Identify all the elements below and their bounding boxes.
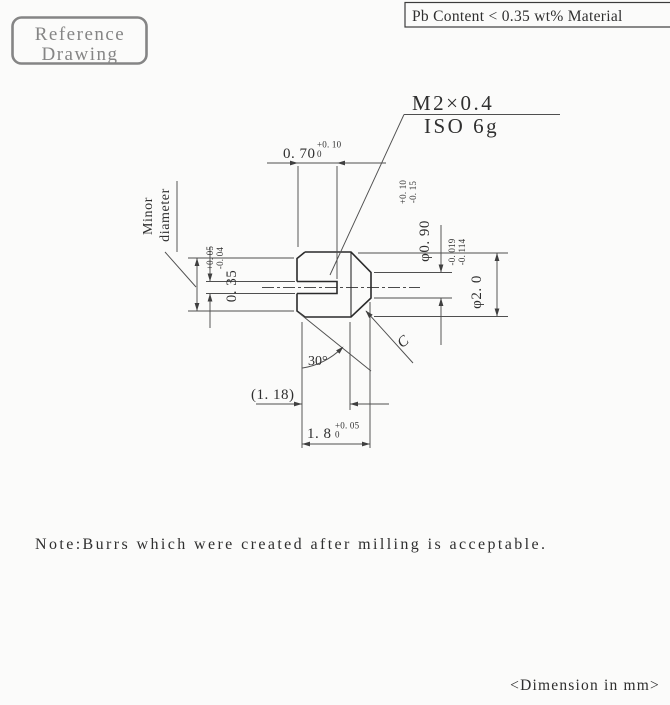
burr-note: Note:Burrs which were created after mill… [35,536,547,553]
arrowhead [195,258,200,266]
dim-tol-lower: 0 [317,149,322,159]
arrowhead [337,161,345,166]
screw-body [297,252,371,317]
arrowhead [195,303,200,311]
arrowhead [362,442,370,447]
dim-tol-lower: 0 [335,430,340,440]
dim-value: φ0. 90 [417,220,433,262]
arrowhead [495,309,500,317]
arrowhead [495,253,500,261]
angle-value: 30° [308,354,328,369]
dim-tol-upper: -0. 019 [447,238,457,265]
dim-tol-upper: +0. 10 [317,140,342,150]
arrowhead [439,265,444,273]
dim-tol-lower: -0. 114 [457,238,467,265]
arrowhead [208,294,213,302]
dim-tol-upper: +0. 05 [205,246,215,271]
units-note: <Dimension in mm> [510,677,660,694]
arrowhead [350,402,358,407]
banner-text: Pb Content < 0.35 wt% Material [412,8,623,25]
chamfer-letter: C [395,332,414,351]
minor-label-line1: Minor [141,197,156,235]
arrowhead [208,274,213,282]
arrowhead [302,442,310,447]
dim-tol-lower: -0. 15 [408,181,418,203]
drawing-canvas: Reference Drawing Pb Content < 0.35 wt% … [0,0,670,700]
dim-nose-diameter: φ0. 90 +0. 10 -0. 15 [374,180,452,345]
dim-tol-upper: +0. 10 [398,180,408,205]
reference-drawing-stamp: Reference Drawing [13,18,147,66]
thread-size-text: M2×0.4 [412,91,494,115]
dim-value: (1. 18) [251,387,295,403]
arrowhead [439,298,444,306]
dim-minor-diameter [188,258,294,311]
dim-chamfer-angle: 30° [299,313,371,371]
label-leader-line [165,252,196,287]
thread-fit-text: ISO 6g [424,114,499,138]
minor-label-line2: diameter [158,188,173,242]
dim-tol-lower: -0. 04 [215,247,225,269]
dim-value: φ2. 0 [469,275,485,309]
stamp-line2: Drawing [42,44,119,65]
screw-outline [297,252,371,317]
chamfer-leader-line [366,311,413,363]
arrowhead [294,402,302,407]
material-banner: Pb Content < 0.35 wt% Material [405,3,670,28]
dim-value: 0. 35 [224,270,240,303]
dim-value: 1. 8 [307,426,332,442]
reference-drawing-sheet: Reference Drawing Pb Content < 0.35 wt% … [0,0,670,700]
minor-diameter-label: Minor diameter [141,181,196,287]
dim-value: 0. 70 [283,146,316,162]
chamfer-callout: C [366,311,414,364]
thread-callout: M2×0.4 ISO 6g [330,91,560,275]
stamp-line1: Reference [35,24,126,45]
dim-body-diameter: φ2. 0 -0. 019 -0. 114 [358,238,508,316]
